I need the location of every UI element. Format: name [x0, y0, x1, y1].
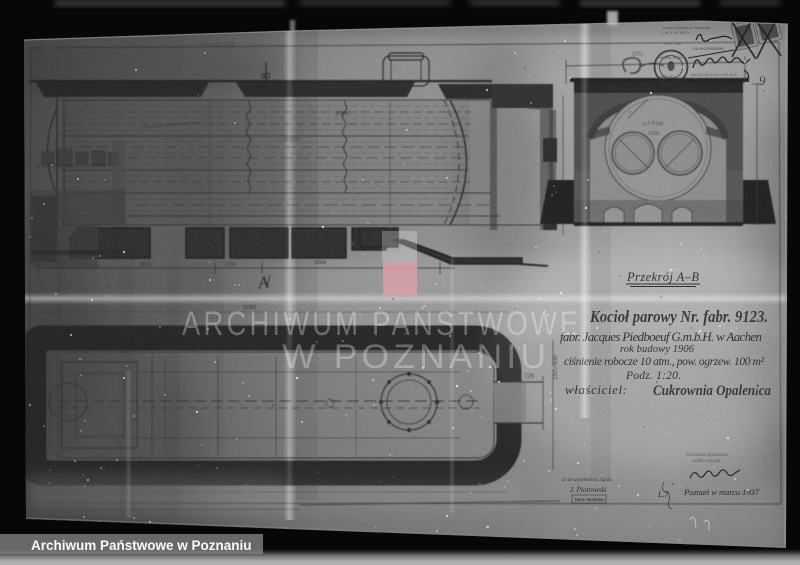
svg-text:Archiwum Państwowe w Poznaniu: Archiwum Państwowe w Poznaniu — [31, 538, 252, 553]
svg-text:W POZNANIU: W POZNANIU — [282, 337, 550, 375]
